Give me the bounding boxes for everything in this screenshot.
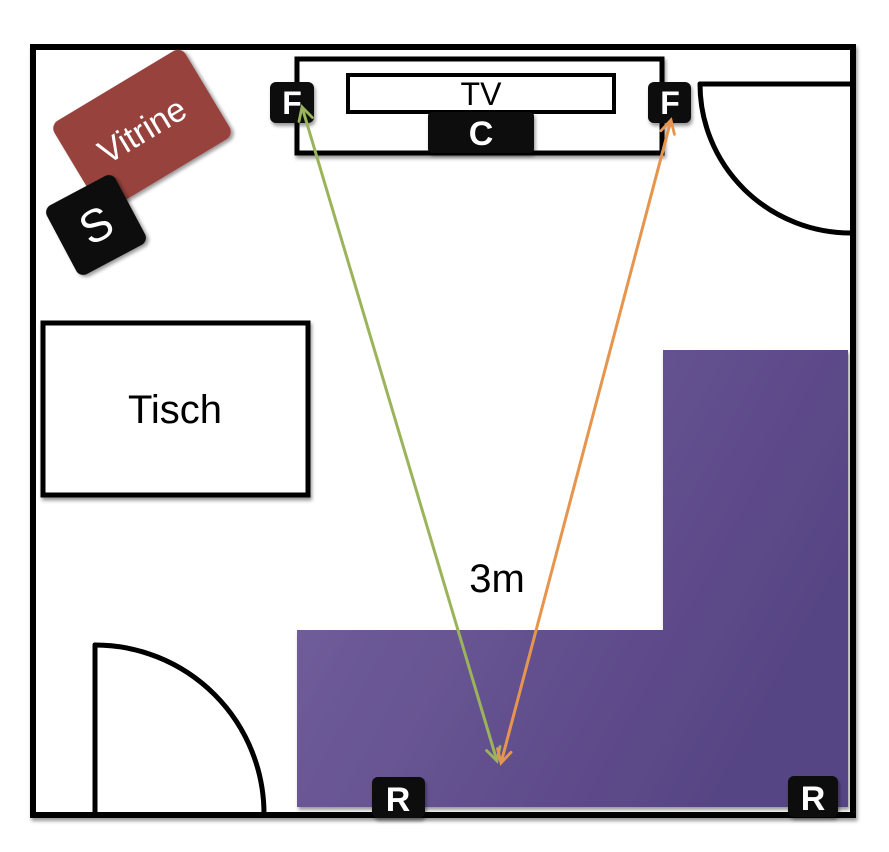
rear-right-speaker-label: R <box>801 780 826 818</box>
tv-label: TV <box>461 76 503 112</box>
floorplan-svg: Vitrine S Tisch TV C F F R R 3m <box>0 0 889 852</box>
center-speaker-label: C <box>469 115 494 153</box>
distance-label: 3m <box>469 557 525 601</box>
table-label: Tisch <box>128 388 222 432</box>
front-left-speaker-label: F <box>282 85 302 121</box>
rear-left-speaker-label: R <box>386 781 411 819</box>
floorplan-canvas: Vitrine S Tisch TV C F F R R 3m <box>0 0 889 852</box>
front-right-speaker-label: F <box>660 85 680 121</box>
